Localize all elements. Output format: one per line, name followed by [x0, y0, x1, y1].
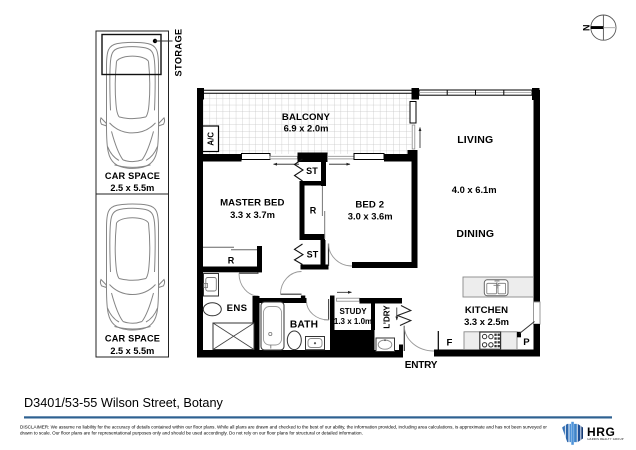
svg-text:P: P [523, 337, 530, 348]
svg-text:N: N [581, 25, 591, 32]
svg-text:DISCLAIMER: We assume no liabi: DISCLAIMER: We assume no liability for t… [20, 425, 547, 430]
svg-text:L’DRY: L’DRY [383, 305, 392, 329]
svg-text:R: R [310, 206, 317, 216]
svg-text:F: F [447, 337, 453, 348]
svg-text:drawn to scale. Our floor plan: drawn to scale. Our floor plans are for … [20, 431, 363, 436]
svg-text:CAR SPACE: CAR SPACE [105, 171, 160, 181]
svg-text:2.5 x 5.5m: 2.5 x 5.5m [110, 346, 154, 356]
svg-text:BED 2: BED 2 [355, 200, 384, 211]
svg-text:4.0 x 6.1m: 4.0 x 6.1m [452, 184, 497, 195]
svg-text:1.3 x 1.0m: 1.3 x 1.0m [334, 317, 372, 326]
svg-text:ENTRY: ENTRY [405, 360, 438, 371]
svg-text:STUDY: STUDY [339, 307, 367, 316]
svg-text:ENS: ENS [227, 303, 248, 314]
svg-text:3.3 x 3.7m: 3.3 x 3.7m [230, 209, 275, 220]
svg-text:6.9 x 2.0m: 6.9 x 2.0m [284, 123, 329, 134]
svg-text:BATH: BATH [290, 320, 318, 331]
svg-text:BALCONY: BALCONY [282, 112, 331, 123]
svg-text:KITCHEN: KITCHEN [465, 305, 508, 316]
svg-text:A/C: A/C [207, 132, 216, 146]
svg-text:R: R [228, 256, 235, 266]
svg-text:DINING: DINING [456, 228, 494, 240]
svg-text:CAR SPACE: CAR SPACE [105, 334, 160, 344]
svg-text:STORAGE: STORAGE [173, 28, 183, 76]
svg-text:MASTER BED: MASTER BED [220, 197, 284, 208]
svg-text:2.5 x 5.5m: 2.5 x 5.5m [110, 183, 154, 193]
svg-text:3.0 x 3.6m: 3.0 x 3.6m [348, 210, 393, 221]
svg-text:3.3 x 2.5m: 3.3 x 2.5m [464, 316, 509, 327]
svg-text:D3401/53-55 Wilson Street, Bot: D3401/53-55 Wilson Street, Botany [24, 396, 224, 410]
svg-text:ST: ST [307, 250, 319, 260]
svg-text:ST: ST [306, 166, 318, 176]
svg-text:LIVING: LIVING [457, 134, 493, 146]
svg-text:HARRIS REALTY GROUP: HARRIS REALTY GROUP [588, 437, 624, 441]
